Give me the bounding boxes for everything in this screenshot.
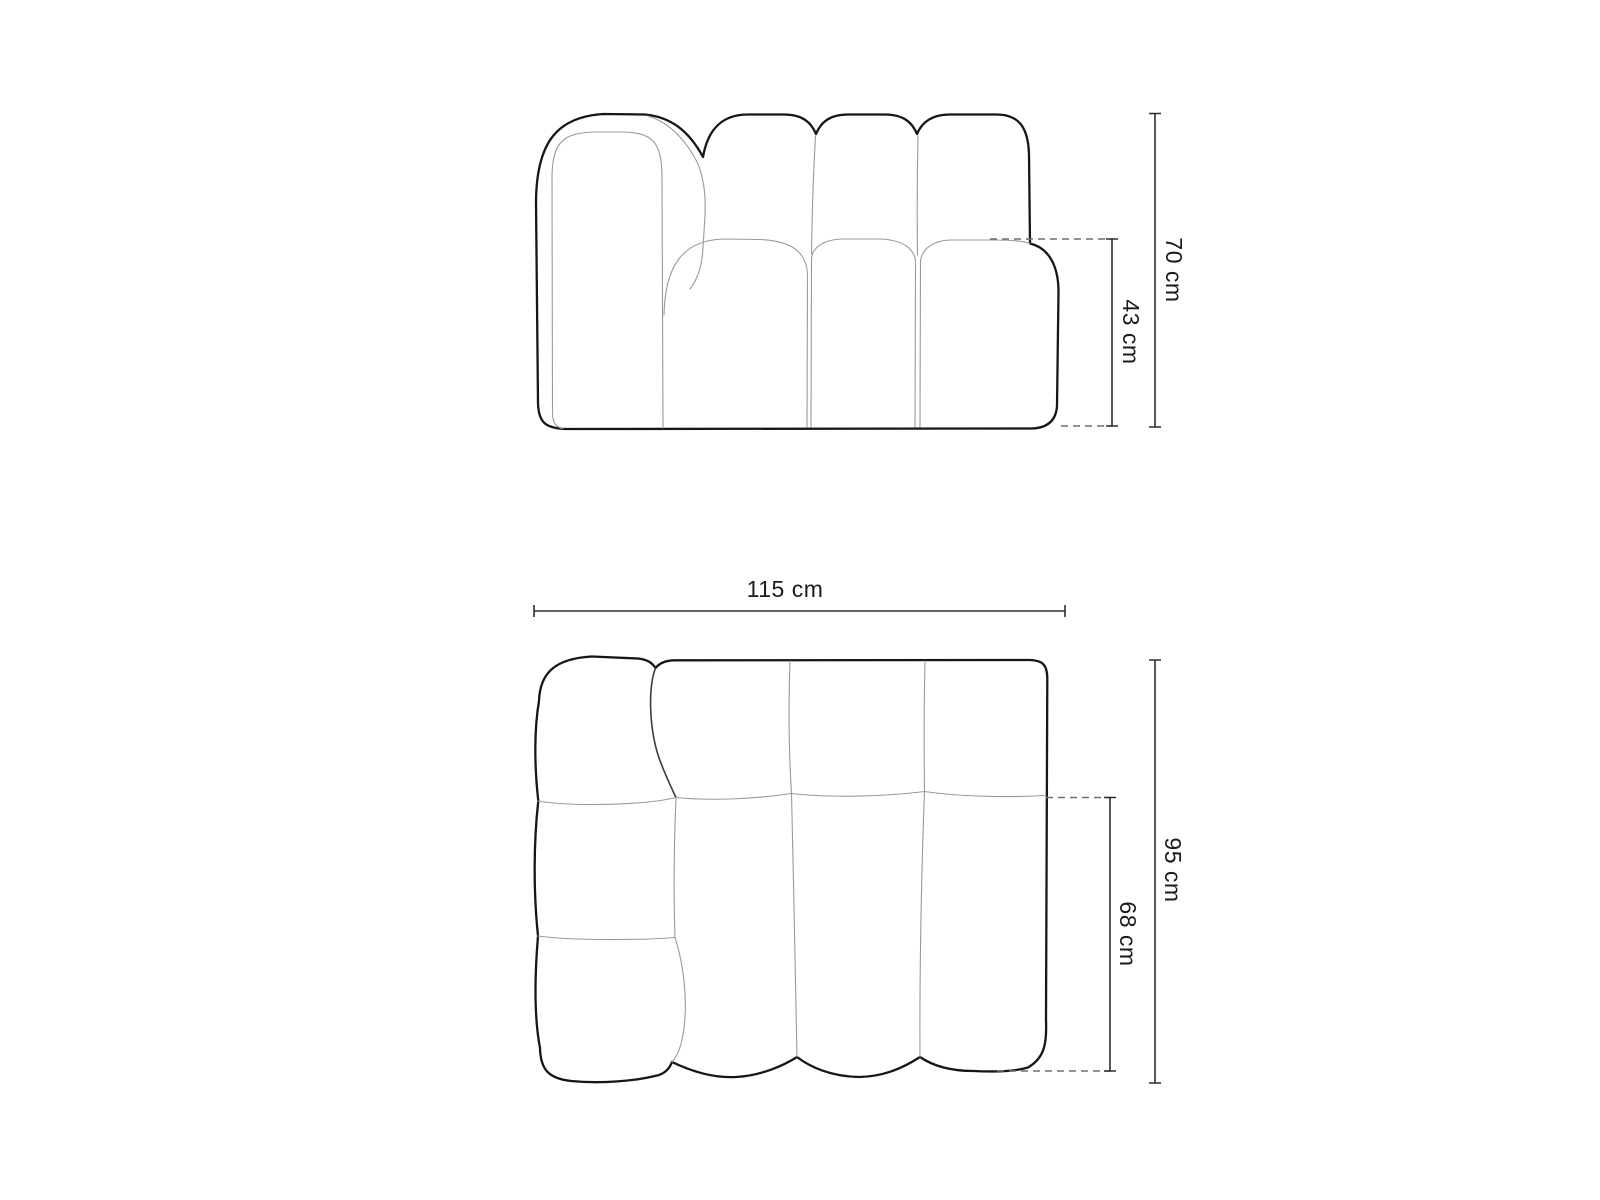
front-dimension-line-seat-height <box>1106 239 1118 426</box>
front-dimension-line-total-height <box>1149 114 1161 428</box>
top-seat-depth-label: 68 cm <box>1115 901 1141 966</box>
sofa-dimension-diagram-page: 43 cm 70 cm 115 cm <box>0 0 1600 1200</box>
front-view-drawing: 43 cm 70 cm <box>536 114 1187 430</box>
front-sofa-outline <box>536 114 1059 429</box>
top-dimension-line-width <box>534 605 1065 617</box>
sofa-dimension-diagram: 43 cm 70 cm 115 cm <box>0 0 1600 1200</box>
top-width-label: 115 cm <box>747 576 824 602</box>
front-total-height-label: 70 cm <box>1161 237 1187 302</box>
front-seat-height-label: 43 cm <box>1118 299 1144 364</box>
top-total-depth-label: 95 cm <box>1160 837 1186 902</box>
top-view-drawing: 115 cm 68 cm <box>534 576 1186 1083</box>
top-sofa-outline <box>535 657 1048 1083</box>
top-dimension-line-seat-depth <box>1104 798 1116 1072</box>
top-dimension-line-total-depth <box>1149 660 1161 1083</box>
